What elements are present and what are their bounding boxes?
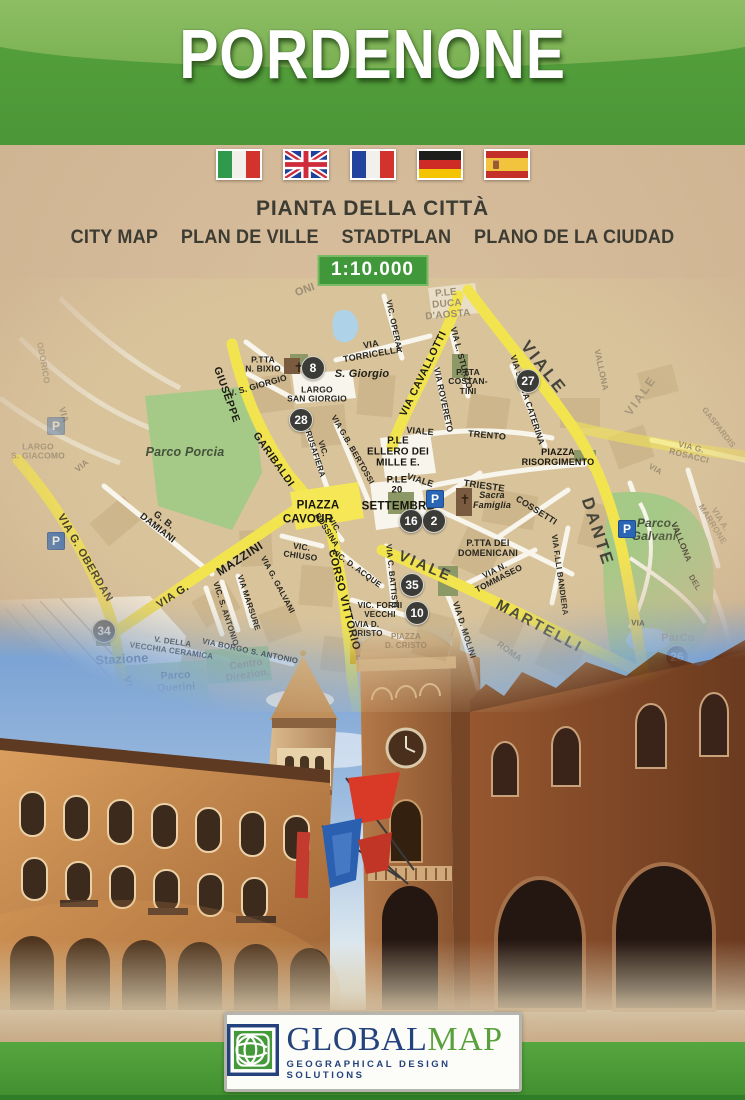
map-label: P.TTA DEI DOMENICANI xyxy=(458,539,518,559)
parking-icon: P xyxy=(426,490,444,508)
globe-icon xyxy=(227,1024,279,1081)
map-label: DANTE xyxy=(577,495,617,568)
map-label: PIAZZA RISORGIMENTO xyxy=(522,448,595,468)
map-label: Parco Porcia xyxy=(146,446,225,460)
map-number-badge: 35 xyxy=(400,573,424,597)
map-label: TRENTO xyxy=(468,429,507,442)
map-label: Stazione xyxy=(95,652,149,669)
globalmap-logo: GLOBALMAP GEOGRAPHICAL DESIGN SOLUTIONS xyxy=(224,1012,522,1092)
uk-flag-icon xyxy=(283,149,329,180)
map-label: VIA SANTI xyxy=(691,664,729,690)
map-label: VIA D. MOLINI xyxy=(450,600,477,659)
map-label: VIA D. CRISTO xyxy=(351,621,382,639)
germany-flag-icon xyxy=(417,149,463,180)
language-label-fr: PLAN DE VILLE xyxy=(181,227,319,249)
map-label: Centro Direzion. xyxy=(224,656,271,684)
parking-icon: P xyxy=(47,417,65,435)
map-label: PIAZZA xyxy=(297,500,340,513)
parking-icon: P xyxy=(47,532,65,550)
map-label: VIA xyxy=(120,675,136,697)
map-label: P.TTA N. BIXIO xyxy=(245,356,281,375)
map-label: Parco Galvani xyxy=(632,517,677,543)
map-label: VIALE xyxy=(405,472,434,490)
map-number-badge: 2 xyxy=(422,509,446,533)
map-label: GARIBALDI xyxy=(250,431,296,490)
spain-flag-icon xyxy=(484,149,530,180)
page-title: PORDENONE xyxy=(60,14,686,94)
map-number-badge: 10 xyxy=(405,601,429,625)
italy-flag-icon xyxy=(216,149,262,180)
map-label: GASPARDIS xyxy=(700,406,737,450)
map-label: V. S. GIORGIO xyxy=(228,373,288,398)
header-banner: PORDENONE xyxy=(0,0,745,145)
map-label: ODORICO xyxy=(35,342,51,385)
map-label: VIA MARSURE xyxy=(235,574,261,632)
map-label: ROMA xyxy=(495,640,524,665)
city-map: ONIP.LE DUCA D'AOSTAVIA TORRICELLAVIC. O… xyxy=(0,278,745,712)
map-label: VIA xyxy=(631,619,646,629)
map-label: VIC. CHIUSO xyxy=(283,540,320,563)
language-label-de: STADTPLAN xyxy=(342,227,452,249)
map-label: VIA G. GALVANI xyxy=(258,555,296,615)
map-label: VIA C. BATTISTI xyxy=(383,544,398,608)
map-number-badge: 27 xyxy=(516,369,540,393)
map-label: Parco Querini xyxy=(156,669,195,694)
map-label: VIA xyxy=(73,458,90,475)
france-flag-icon xyxy=(350,149,396,180)
map-label: VIC. FORNI VECCHI xyxy=(358,602,403,620)
map-label: VIALE xyxy=(623,374,660,419)
map-label: ✝ xyxy=(459,493,470,507)
map-label: VIA G. OBERDAN xyxy=(55,512,115,604)
red-banner xyxy=(295,832,310,898)
language-label-es: PLANO DE LA CIUDAD xyxy=(474,227,674,249)
map-number-badge: 28 xyxy=(289,408,313,432)
map-label: P.LE ELLERO DEI MILLE E. xyxy=(367,436,429,469)
parking-icon: P xyxy=(53,670,71,688)
map-label: VIA N. TOMMASEO xyxy=(470,555,524,595)
map-number-badge: 26 xyxy=(665,645,689,669)
map-label: P.LE DUCA D'AOSTA xyxy=(423,286,471,323)
logo-wordmark: GLOBALMAP xyxy=(287,1021,503,1058)
map-label: DEL xyxy=(686,574,702,593)
subtitle-italian: PIANTA DELLA CITTÀ xyxy=(0,197,745,221)
map-label: VIC. S. ANTONIO xyxy=(210,581,239,647)
language-row: CITY MAP PLAN DE VILLE STADTPLAN PLANO D… xyxy=(19,227,727,249)
map-label: VALLONA xyxy=(592,349,610,392)
map-label: ONI xyxy=(293,281,316,299)
map-label: VIA G. ROSACCI xyxy=(661,436,719,467)
map-label: LARGO S. GIACOMO xyxy=(11,443,65,462)
map-label: G. B. DAMIANI xyxy=(137,504,183,546)
map-label: VIA F.LLI BANDIERA xyxy=(549,534,569,616)
map-label: VIC. BOSSINA xyxy=(313,507,348,548)
map-label: VIA G. xyxy=(155,581,192,611)
map-number-badge: 34 xyxy=(92,619,116,643)
map-label: Sacra Famiglia xyxy=(473,491,511,511)
map-label: ParCo xyxy=(661,632,694,644)
map-label: S. Giorgio xyxy=(335,368,390,380)
map-label: SETTEMBRE xyxy=(362,501,435,514)
logo-tagline: GEOGRAPHICAL DESIGN SOLUTIONS xyxy=(287,1059,519,1081)
map-label: LARGO SAN GIORGIO xyxy=(287,386,347,405)
map-label: COSSETTI xyxy=(514,494,559,527)
map-label: PIAZZA D. CRISTO xyxy=(385,633,427,651)
flag-row xyxy=(0,149,745,180)
map-label: VIA xyxy=(647,463,663,478)
map-label: P.TTA COSTAN- TINI xyxy=(448,368,488,396)
language-label-en: CITY MAP xyxy=(71,227,158,249)
parking-icon: P xyxy=(618,520,636,538)
map-labels: ONIP.LE DUCA D'AOSTAVIA TORRICELLAVIC. O… xyxy=(0,278,745,712)
map-number-badge: 16 xyxy=(399,509,423,533)
map-cover-page: ONIP.LE DUCA D'AOSTAVIA TORRICELLAVIC. O… xyxy=(0,0,745,1100)
map-label: P.LE 20 xyxy=(387,476,408,497)
map-number-badge: 8 xyxy=(301,356,325,380)
scale-badge: 1:10.000 xyxy=(317,255,428,286)
map-label: VIA A. MARRONE xyxy=(696,498,736,546)
